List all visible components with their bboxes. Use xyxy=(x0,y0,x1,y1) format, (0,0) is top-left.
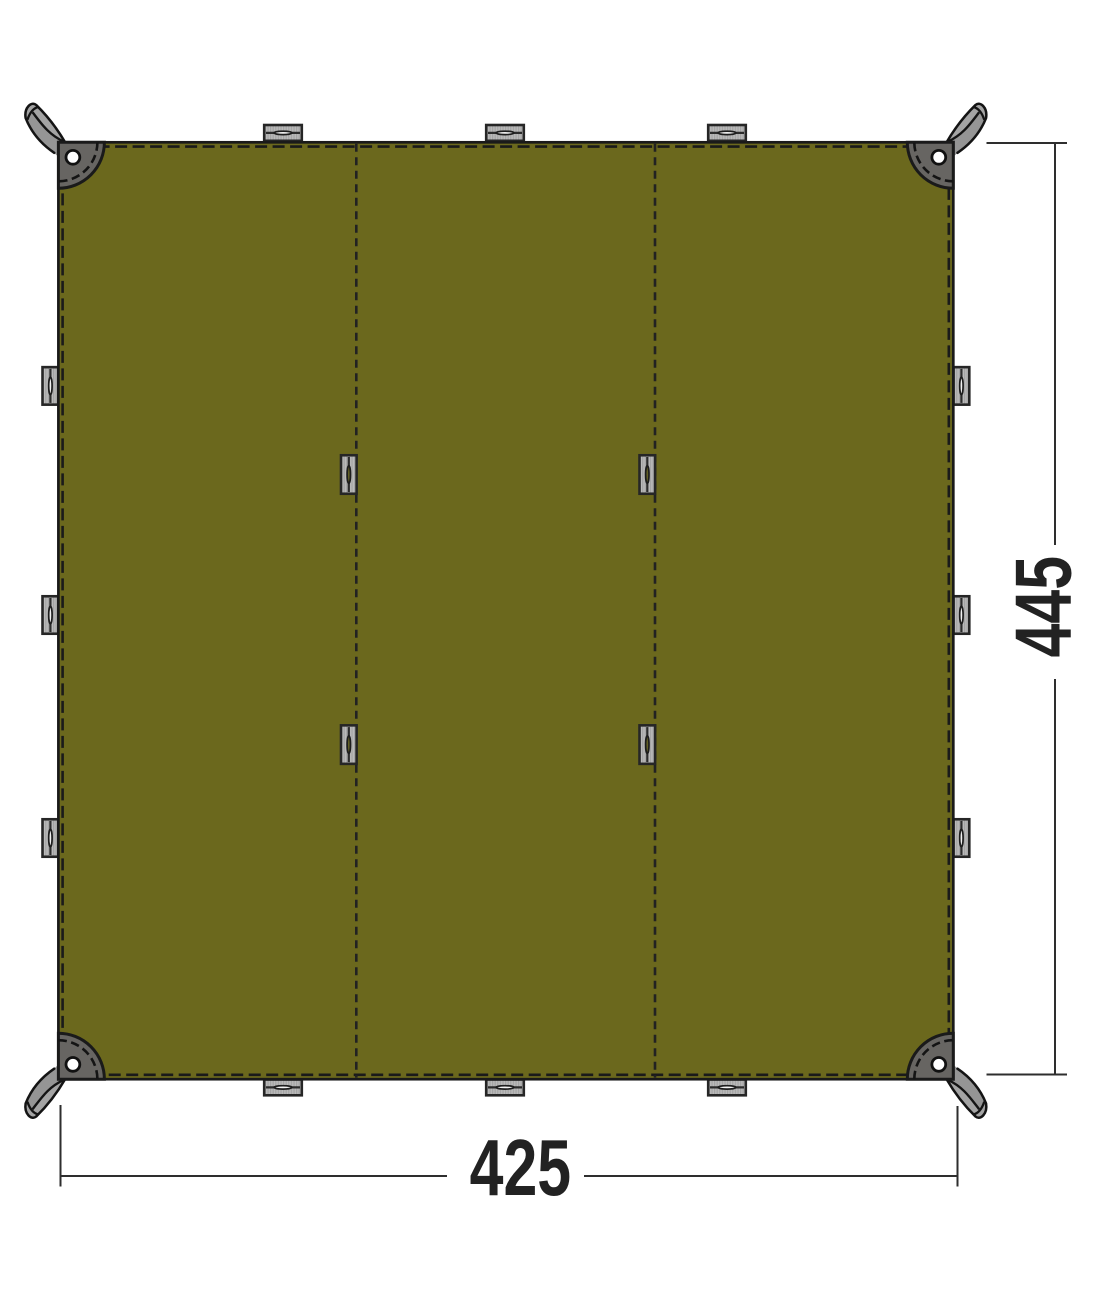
svg-text:445: 445 xyxy=(1000,556,1089,657)
svg-text:425: 425 xyxy=(470,1124,571,1213)
